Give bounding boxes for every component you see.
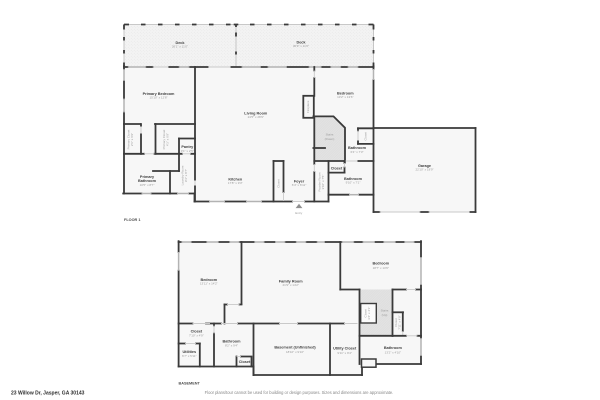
svg-text:24'5" x 28'9": 24'5" x 28'9": [248, 115, 264, 119]
svg-text:3'1" x 2'5": 3'1" x 2'5": [181, 149, 194, 153]
svg-text:15'10" x 12'8": 15'10" x 12'8": [149, 96, 167, 100]
svg-text:(Down): (Down): [325, 137, 335, 141]
svg-text:2'6" x 6'9": 2'6" x 6'9": [130, 133, 134, 146]
svg-text:Stairs: Stairs: [326, 133, 334, 137]
svg-text:21'9" x 14'2": 21'9" x 14'2": [282, 283, 298, 287]
svg-text:4'3" x 6'9": 4'3" x 6'9": [166, 133, 170, 146]
svg-text:13'2" x 13'6": 13'2" x 13'6": [337, 95, 353, 99]
svg-text:7'11" x 4'9": 7'11" x 4'9": [397, 315, 401, 330]
svg-text:13'2" x 4'10": 13'2" x 4'10": [385, 350, 401, 354]
svg-text:Fireplace: Fireplace: [306, 100, 310, 113]
svg-text:3'10" x 7'5": 3'10" x 7'5": [321, 175, 325, 190]
svg-text:3'4" x 4'1": 3'4" x 4'1": [367, 307, 371, 320]
svg-text:Closet: Closet: [364, 132, 368, 141]
svg-text:6'4" x 6'11": 6'4" x 6'11": [292, 183, 307, 187]
svg-text:Closet: Closet: [277, 179, 281, 188]
svg-text:Stairs: Stairs: [381, 309, 389, 313]
svg-text:Utility Closet: Utility Closet: [333, 347, 357, 351]
svg-text:13'11" x 14'2": 13'11" x 14'2": [200, 282, 218, 286]
svg-text:22'10" x 18'9": 22'10" x 18'9": [415, 168, 433, 172]
svg-text:Bathroom: Bathroom: [384, 346, 403, 350]
svg-text:6'7" x 5'11": 6'7" x 5'11": [182, 354, 197, 358]
svg-text:Basement (Unfinished): Basement (Unfinished): [274, 346, 316, 350]
svg-text:(Up): (Up): [382, 313, 388, 317]
svg-text:BASEMENT: BASEMENT: [179, 382, 201, 386]
svg-text:Floor plans/tour cannot be use: Floor plans/tour cannot be used for buil…: [205, 390, 394, 395]
svg-text:Entry: Entry: [295, 211, 303, 215]
svg-text:6'4" x 7'3": 6'4" x 7'3": [350, 150, 363, 154]
svg-text:Closet: Closet: [239, 360, 251, 364]
svg-text:17'8" x 9'3": 17'8" x 9'3": [228, 181, 243, 185]
svg-text:26'1" x 11'0": 26'1" x 11'0": [172, 45, 188, 49]
svg-text:Bedroom: Bedroom: [372, 262, 389, 266]
svg-text:9'4" x 8'7": 9'4" x 8'7": [184, 169, 188, 182]
svg-text:10'5" x 8'7": 10'5" x 8'7": [140, 183, 155, 187]
svg-text:18'7" x 13'6": 18'7" x 13'6": [373, 266, 389, 270]
svg-text:FLOOR 1: FLOOR 1: [124, 218, 140, 222]
svg-text:7'10" x 4'9": 7'10" x 4'9": [189, 334, 204, 338]
svg-text:9'10" x 7'1": 9'10" x 7'1": [346, 181, 361, 185]
svg-text:9'11" x 9'4": 9'11" x 9'4": [337, 351, 352, 355]
svg-text:30'9" x 11'0": 30'9" x 11'0": [293, 44, 309, 48]
svg-text:8'2" x 9'4": 8'2" x 9'4": [225, 344, 238, 348]
svg-text:Closet: Closet: [331, 166, 343, 170]
svg-text:23 Willow Dr, Jasper, GA 30143: 23 Willow Dr, Jasper, GA 30143: [11, 391, 85, 397]
svg-text:18'10" x 9'10": 18'10" x 9'10": [286, 350, 304, 354]
